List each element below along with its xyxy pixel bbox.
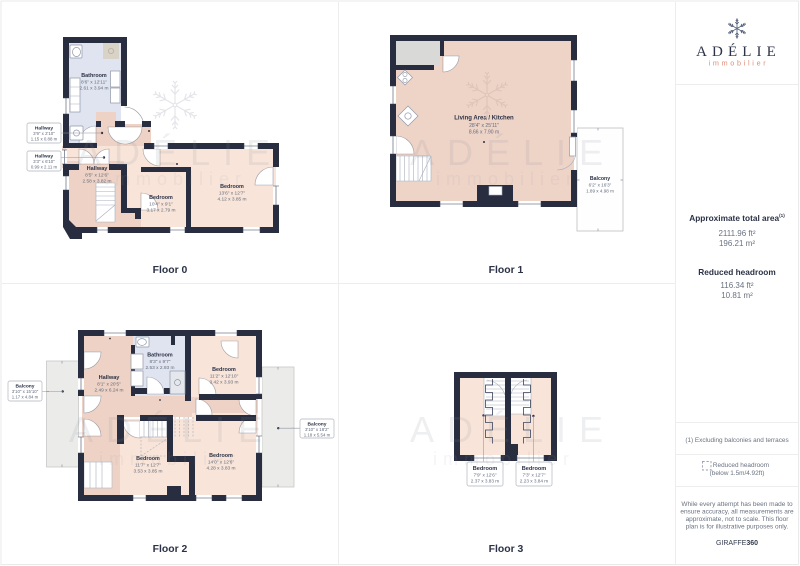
- svg-text:3'9" x 2'10": 3'9" x 2'10": [33, 131, 55, 136]
- svg-text:immobilier: immobilier: [436, 169, 578, 189]
- svg-text:(below 1.5m/4.92ft): (below 1.5m/4.92ft): [710, 470, 765, 477]
- svg-text:(1) Excluding balconies and te: (1) Excluding balconies and terraces: [685, 437, 788, 444]
- svg-text:3.17 x 2.79 m: 3.17 x 2.79 m: [146, 208, 175, 214]
- svg-text:1.89 x 4.98 m: 1.89 x 4.98 m: [586, 189, 614, 194]
- svg-text:ADÉLIE: ADÉLIE: [410, 132, 616, 173]
- svg-text:Bedroom: Bedroom: [212, 367, 236, 373]
- svg-text:7'3" x 12'7": 7'3" x 12'7": [522, 473, 545, 478]
- svg-text:Bathroom: Bathroom: [81, 73, 107, 79]
- svg-text:Floor 0: Floor 0: [153, 265, 188, 276]
- svg-text:116.34 ft²: 116.34 ft²: [720, 281, 754, 290]
- svg-text:11'2" x 12'10": 11'2" x 12'10": [210, 374, 239, 380]
- svg-text:Bathroom: Bathroom: [147, 353, 173, 359]
- svg-text:immobilier: immobilier: [709, 59, 769, 68]
- svg-text:8'3" x 9'7": 8'3" x 9'7": [150, 359, 171, 365]
- svg-text:1.15 x 0.88 m: 1.15 x 0.88 m: [31, 137, 58, 142]
- svg-text:Approximate total area(1): Approximate total area(1): [689, 213, 785, 223]
- svg-text:2111.96 ft²: 2111.96 ft²: [718, 229, 755, 238]
- svg-text:Reduced headroom: Reduced headroom: [713, 462, 769, 469]
- svg-text:Floor 3: Floor 3: [489, 544, 524, 555]
- svg-text:8'6" x 12'11": 8'6" x 12'11": [81, 80, 107, 86]
- svg-text:ADÉLIE: ADÉLIE: [77, 132, 283, 173]
- svg-text:1.18 x 5.54 m: 1.18 x 5.54 m: [304, 433, 331, 438]
- svg-text:4.12 x 3.85 m: 4.12 x 3.85 m: [217, 197, 246, 203]
- svg-text:immobilier: immobilier: [105, 169, 247, 189]
- svg-text:10.81 m²: 10.81 m²: [721, 291, 753, 300]
- svg-text:Bedroom: Bedroom: [149, 195, 173, 201]
- svg-text:While every attempt has been m: While every attempt has been made to: [681, 501, 793, 508]
- svg-text:0.99 x 2.11 m: 0.99 x 2.11 m: [31, 165, 58, 170]
- svg-text:3.42 x 3.93 m: 3.42 x 3.93 m: [209, 380, 238, 386]
- svg-text:7'9" x 12'6": 7'9" x 12'6": [473, 473, 496, 478]
- svg-text:approximate, not to scale. Thi: approximate, not to scale. This floor: [686, 516, 790, 523]
- svg-text:8'1" x 20'5": 8'1" x 20'5": [97, 382, 121, 388]
- svg-text:Floor 1: Floor 1: [489, 265, 524, 276]
- svg-text:2.23 x 3.84 m: 2.23 x 3.84 m: [520, 479, 548, 484]
- svg-text:10'4" x 9'1": 10'4" x 9'1": [149, 202, 173, 208]
- svg-text:13'6" x 12'7": 13'6" x 12'7": [219, 191, 246, 197]
- svg-text:Floor 2: Floor 2: [153, 544, 188, 555]
- svg-text:immobilier: immobilier: [433, 449, 575, 469]
- svg-text:GIRAFFE360: GIRAFFE360: [716, 540, 758, 547]
- svg-text:Living Area / Kitchen: Living Area / Kitchen: [454, 116, 514, 122]
- svg-text:plan is for illustrative purpo: plan is for illustrative purposes only.: [686, 524, 789, 531]
- svg-text:1.17 x 4.84 m: 1.17 x 4.84 m: [12, 395, 39, 400]
- svg-text:6'2" x 16'3": 6'2" x 16'3": [589, 183, 612, 188]
- svg-text:2.53 x 2.93 m: 2.53 x 2.93 m: [145, 365, 174, 371]
- svg-text:196.21 m²: 196.21 m²: [719, 239, 755, 248]
- svg-text:3.53 x 3.85 m: 3.53 x 3.85 m: [133, 469, 162, 475]
- svg-text:Balcony: Balcony: [590, 176, 610, 182]
- svg-text:ADÉLIE: ADÉLIE: [696, 43, 781, 60]
- svg-text:3'3" x 6'10": 3'3" x 6'10": [33, 159, 55, 164]
- svg-text:Reduced headroom: Reduced headroom: [698, 267, 775, 277]
- svg-text:ADÉLIE: ADÉLIE: [69, 409, 275, 450]
- svg-text:3'10" x 15'10": 3'10" x 15'10": [12, 389, 39, 394]
- svg-text:Hallway: Hallway: [99, 375, 121, 381]
- svg-text:2.61 x 3.94 m: 2.61 x 3.94 m: [79, 86, 108, 92]
- svg-text:2.49 x 6.24 m: 2.49 x 6.24 m: [94, 388, 123, 394]
- svg-text:3'10" x 18'2": 3'10" x 18'2": [305, 427, 330, 432]
- svg-text:immobilier: immobilier: [99, 449, 241, 469]
- svg-text:2.37 x 3.83 m: 2.37 x 3.83 m: [471, 479, 499, 484]
- svg-text:28'4" x 25'11": 28'4" x 25'11": [469, 123, 499, 129]
- svg-text:ADÉLIE: ADÉLIE: [410, 409, 616, 450]
- svg-text:ensure accuracy, all measureme: ensure accuracy, all measurements are: [680, 509, 794, 516]
